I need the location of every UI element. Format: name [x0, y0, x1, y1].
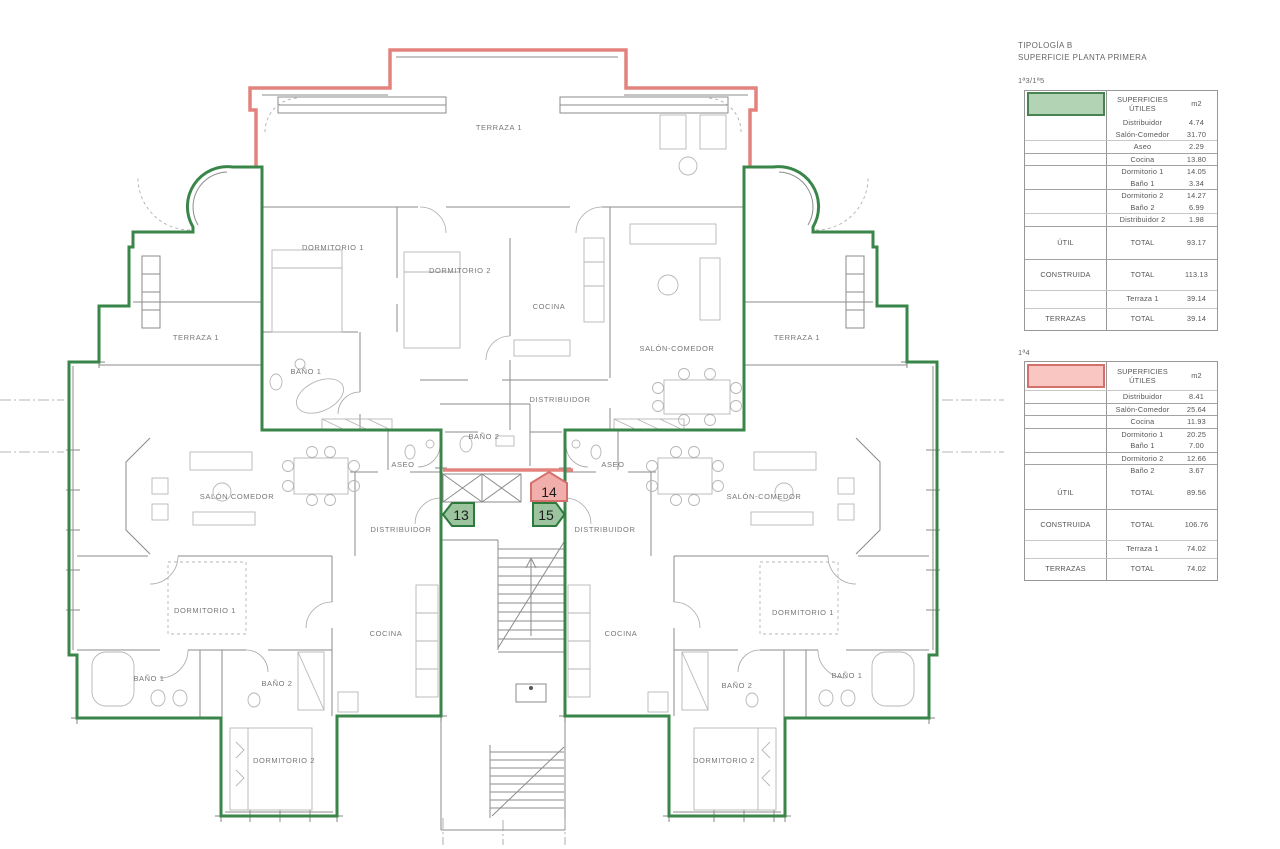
room-name: Cocina	[1107, 154, 1178, 166]
room-label: TERRAZA 1	[476, 123, 522, 132]
room-label: SALÓN-COMEDOR	[640, 344, 715, 353]
room-name: Salón-Comedor	[1107, 129, 1178, 141]
total-value: 74.02	[1178, 559, 1215, 580]
room-area: 13.80	[1178, 154, 1215, 166]
room-name: Baño 2	[1107, 465, 1178, 477]
room-label: SALÓN COMEDOR	[200, 492, 274, 501]
pink-unit-swatch	[1027, 364, 1105, 388]
room-labels: TERRAZA 1 DORMITORIO 1 DORMITORIO 2 COCI…	[133, 123, 862, 765]
room-label: BAÑO 1	[290, 367, 321, 376]
legend: TIPOLOGÍA B SUPERFICIE PLANTA PRIMERA 1ª…	[1018, 40, 1228, 63]
room-label: DORMITORIO 2	[429, 266, 491, 275]
room-label: DISTRIBUIDOR	[371, 525, 432, 534]
room-name: Cocina	[1107, 416, 1178, 428]
total-name: TOTAL	[1107, 477, 1178, 509]
room-label: SALÓN-COMEDOR	[727, 492, 802, 501]
room-name: Distribuidor	[1107, 391, 1178, 403]
swatch-cell	[1025, 91, 1107, 117]
col-header: SUPERFICIES ÚTILES	[1107, 362, 1178, 390]
room-name: Distribuidor 2	[1107, 214, 1178, 226]
room-label: DORMITORIO 1	[302, 243, 364, 252]
total-name: TOTAL	[1107, 510, 1178, 540]
room-label: BAÑO 2	[721, 681, 752, 690]
green-unit-swatch	[1027, 92, 1105, 116]
section-label: ÚTIL	[1025, 477, 1107, 509]
stairs	[441, 474, 565, 830]
total-value: 93.17	[1178, 227, 1215, 259]
section-label: TERRAZAS	[1025, 559, 1107, 580]
room-area: 3.34	[1178, 178, 1215, 190]
sheet-title-line2: SUPERFICIE PLANTA PRIMERA	[1018, 52, 1228, 64]
door-arcs	[138, 98, 868, 678]
walls	[66, 57, 940, 822]
room-label: COCINA	[533, 302, 566, 311]
room-area: 14.05	[1178, 166, 1215, 178]
room-area: 6.99	[1178, 202, 1215, 214]
section-label	[1025, 291, 1107, 308]
sheet-title: TIPOLOGÍA B SUPERFICIE PLANTA PRIMERA	[1018, 40, 1228, 63]
room-area: 7.00	[1178, 440, 1215, 452]
room-label: COCINA	[370, 629, 403, 638]
total-value: 74.02	[1178, 541, 1215, 558]
room-name: Distribuidor	[1107, 117, 1178, 129]
unit-15-marker-label: 15	[538, 507, 554, 523]
section-label	[1025, 541, 1107, 558]
room-name: Dormitorio 2	[1107, 190, 1178, 202]
total-name: Terraza 1	[1107, 291, 1178, 308]
room-label: BAÑO 1	[133, 674, 164, 683]
total-name: TOTAL	[1107, 260, 1178, 290]
areas-table-unit-14: SUPERFICIES ÚTILES m2 Distribuidor8.41 S…	[1024, 361, 1218, 581]
total-name: TOTAL	[1107, 309, 1178, 330]
room-label: BAÑO 2	[261, 679, 292, 688]
unit-15-marker: 15	[533, 503, 565, 526]
unit-header: m2	[1178, 362, 1215, 390]
room-name: Dormitorio 2	[1107, 453, 1178, 465]
room-label: DORMITORIO 1	[772, 608, 834, 617]
room-label: ASEO	[391, 460, 414, 469]
room-label: DISTRIBUIDOR	[530, 395, 591, 404]
room-label: COCINA	[605, 629, 638, 638]
furniture	[92, 115, 914, 810]
total-value: 89.56	[1178, 477, 1215, 509]
total-value: 113.13	[1178, 260, 1215, 290]
room-label: DORMITORIO 1	[174, 606, 236, 615]
total-value: 39.14	[1178, 291, 1215, 308]
room-area: 8.41	[1178, 391, 1215, 403]
room-label: TERRAZA 1	[774, 333, 820, 342]
room-area: 1.98	[1178, 214, 1215, 226]
room-label: DISTRIBUIDOR	[575, 525, 636, 534]
total-value: 106.76	[1178, 510, 1215, 540]
room-area: 4.74	[1178, 117, 1215, 129]
room-area: 31.70	[1178, 129, 1215, 141]
room-area: 20.25	[1178, 429, 1215, 441]
centerlines	[0, 400, 1004, 845]
room-name: Dormitorio 1	[1107, 429, 1178, 441]
room-name: Baño 1	[1107, 440, 1178, 452]
total-name: TOTAL	[1107, 559, 1178, 580]
unit-14-marker-label: 14	[541, 484, 557, 500]
room-name: Baño 1	[1107, 178, 1178, 190]
section-label: CONSTRUIDA	[1025, 260, 1107, 290]
total-value: 39.14	[1178, 309, 1215, 330]
room-area: 25.64	[1178, 404, 1215, 416]
floor-plan-drawing: 13 14 15 TERRAZA 1 DORMITORIO 1 DORMITOR…	[0, 0, 1006, 849]
room-area: 11.93	[1178, 416, 1215, 428]
room-area: 3.67	[1178, 465, 1215, 477]
room-area: 14.27	[1178, 190, 1215, 202]
unit-ref-13-15: 1ª3/1ª5	[1018, 76, 1044, 85]
room-area: 2.29	[1178, 141, 1215, 153]
room-label: TERRAZA 1	[173, 333, 219, 342]
section-label: ÚTIL	[1025, 227, 1107, 259]
total-name: Terraza 1	[1107, 541, 1178, 558]
section-label: CONSTRUIDA	[1025, 510, 1107, 540]
unit-13-marker-label: 13	[453, 507, 469, 523]
room-label: BAÑO 2	[468, 432, 499, 441]
room-label: DORMITORIO 2	[253, 756, 315, 765]
swatch-cell	[1025, 362, 1107, 390]
unit-14-marker: 14	[531, 472, 567, 501]
room-area: 12.66	[1178, 453, 1215, 465]
unit-ref-14: 1ª4	[1018, 348, 1030, 357]
room-name: Baño 2	[1107, 202, 1178, 214]
areas-table-units-13-15: SUPERFICIES ÚTILES m2 Distribuidor4.74 S…	[1024, 90, 1218, 331]
sheet-title-line1: TIPOLOGÍA B	[1018, 40, 1228, 52]
unit-13-marker: 13	[443, 503, 474, 526]
floor-plan-sheet: 13 14 15 TERRAZA 1 DORMITORIO 1 DORMITOR…	[0, 0, 1280, 849]
room-name: Aseo	[1107, 141, 1178, 153]
total-name: TOTAL	[1107, 227, 1178, 259]
section-label: TERRAZAS	[1025, 309, 1107, 330]
room-label: ASEO	[601, 460, 624, 469]
room-name: Salón-Comedor	[1107, 404, 1178, 416]
col-header: SUPERFICIES ÚTILES	[1107, 91, 1178, 117]
unit-header: m2	[1178, 91, 1215, 117]
room-name: Dormitorio 1	[1107, 166, 1178, 178]
room-label: BAÑO 1	[831, 671, 862, 680]
room-label: DORMITORIO 2	[693, 756, 755, 765]
